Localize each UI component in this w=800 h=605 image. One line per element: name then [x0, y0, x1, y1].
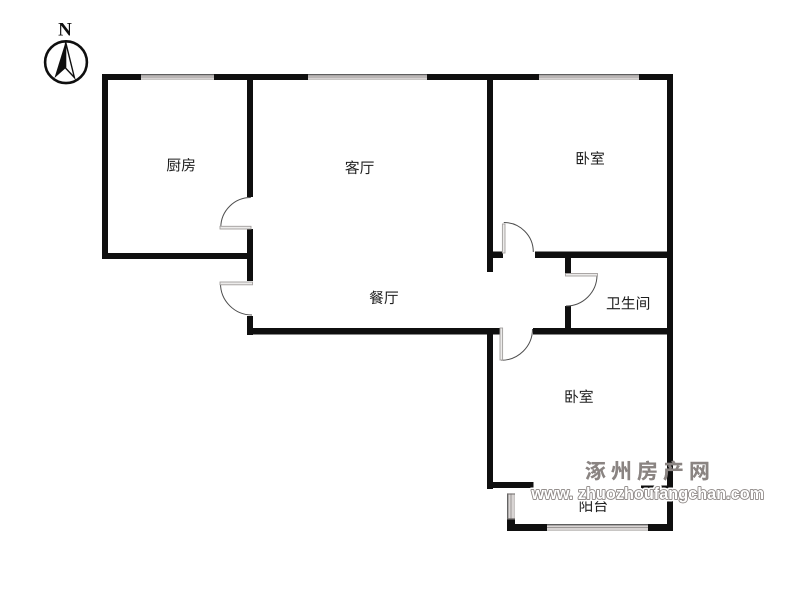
- svg-text:www. zhuozhoufangchan.com: www. zhuozhoufangchan.com: [530, 485, 764, 503]
- svg-text:N: N: [58, 20, 72, 41]
